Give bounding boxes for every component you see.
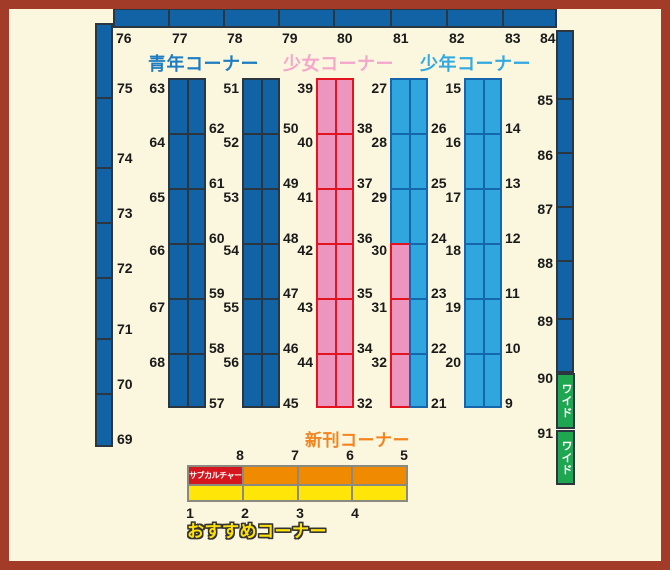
seinen-corner-title: 青年コーナー	[148, 50, 259, 76]
shoujo-shounen-shelf-column	[390, 78, 409, 408]
right-wall-label: 87	[523, 201, 553, 217]
seinen-shelf-1-cell	[168, 298, 187, 353]
seinen-shelf-2-cell	[261, 353, 280, 408]
seinen-shelf-2-cell	[261, 78, 280, 133]
new-releases-shelf-row: サブカルチャー	[189, 467, 406, 484]
shounen-shelf-label-left: 19	[431, 299, 461, 315]
shoujo-shelf-label-left: 39	[283, 80, 313, 96]
shoujo-shounen-shelf-label-left: 27	[357, 80, 387, 96]
left-wall-divider	[97, 97, 111, 99]
shoujo-shelf-cell	[316, 243, 335, 298]
seinen-shelf-1-cell	[168, 133, 187, 188]
left-wall-label: 69	[117, 431, 143, 447]
left-wall-label: 74	[117, 150, 143, 166]
shoujo-shounen-shelf-label-left: 29	[357, 189, 387, 205]
shoujo-shounen-shelf-cell	[390, 298, 409, 353]
shounen-shelf-cell	[464, 78, 483, 133]
shoujo-shelf-label-left: 41	[283, 189, 313, 205]
left-wall-divider	[97, 338, 111, 340]
top-wall-label: 83	[505, 30, 531, 46]
seinen-shelf-2-cell	[261, 243, 280, 298]
shoujo-shelf-cell	[335, 188, 354, 243]
top-wall-label: 78	[227, 30, 253, 46]
subculture-cell: サブカルチャー	[189, 467, 242, 484]
shounen-shelf-label-right: 10	[505, 340, 535, 356]
new-releases-cell-orange	[242, 467, 297, 484]
shounen-shelf-cell	[483, 243, 502, 298]
seinen-shelf-2-cell	[242, 188, 261, 243]
seinen-shelf-1-label-left: 67	[135, 299, 165, 315]
shoujo-shelf-cell	[316, 298, 335, 353]
left-wall-label: 71	[117, 321, 143, 337]
wide-shelf-segment: ワイド	[556, 430, 575, 485]
seinen-shelf-2-cell	[242, 353, 261, 408]
shounen-shelf-cell	[464, 133, 483, 188]
shounen-shelf-cell	[464, 243, 483, 298]
shoujo-shelf-cell	[335, 298, 354, 353]
new-releases-shelf: サブカルチャー	[187, 465, 408, 502]
top-wall-divider	[223, 10, 225, 26]
left-wall-divider	[97, 222, 111, 224]
shoujo-shelf-label-left: 44	[283, 354, 313, 370]
right-wall-divider	[558, 260, 572, 262]
seinen-shelf-1-cell	[187, 188, 206, 243]
seinen-shelf-1-cell	[168, 243, 187, 298]
right-wall-label: 91	[523, 425, 553, 441]
top-wall-divider	[390, 10, 392, 26]
shoujo-shelf-label-left: 43	[283, 299, 313, 315]
shounen-shelf-label-left: 20	[431, 354, 461, 370]
shoujo-shounen-shelf-cell	[390, 133, 409, 188]
shoujo-shelf-cell	[316, 133, 335, 188]
shounen-shelf-label-left: 18	[431, 242, 461, 258]
seinen-shelf-2-cell	[242, 298, 261, 353]
seinen-shelf-1-label-left: 68	[135, 354, 165, 370]
shounen-corner-title: 少年コーナー	[420, 50, 531, 76]
wide-label: ワイド	[560, 440, 571, 476]
seinen-shelf-2-cell	[242, 133, 261, 188]
new-releases-cell-yellow	[297, 486, 352, 500]
seinen-shelf-2-cell	[261, 298, 280, 353]
shounen-shelf-cell	[464, 188, 483, 243]
shoujo-shounen-shelf-cell	[390, 353, 409, 408]
shoujo-shounen-shelf-cell	[409, 298, 428, 353]
seinen-shelf-2-cell	[242, 243, 261, 298]
shounen-shelf-label-right: 13	[505, 175, 535, 191]
shounen-shelf-label-right: 11	[505, 285, 535, 301]
shoujo-shounen-shelf-label-left: 31	[357, 299, 387, 315]
shoujo-shelf-cell	[335, 78, 354, 133]
shounen-shelf-label-left: 15	[431, 80, 461, 96]
seinen-shelf-2-column	[261, 78, 280, 408]
subculture-label: サブカルチャー	[189, 470, 241, 481]
seinen-shelf-1-cell	[187, 353, 206, 408]
new-releases-bottom-label: 4	[340, 505, 370, 521]
seinen-shelf-1-cell	[187, 78, 206, 133]
shounen-shelf-cell	[464, 298, 483, 353]
shoujo-shounen-shelf-cell	[390, 188, 409, 243]
top-wall-label: 79	[282, 30, 308, 46]
shoujo-shounen-shelf-label-left: 32	[357, 354, 387, 370]
top-wall-label: 82	[449, 30, 475, 46]
shounen-shelf-label-right: 14	[505, 120, 535, 136]
seinen-shelf-2-cell	[261, 133, 280, 188]
shoujo-shelf-column	[316, 78, 335, 408]
seinen-shelf-1-cell	[168, 353, 187, 408]
seinen-shelf-2-label-left: 56	[209, 354, 239, 370]
top-wall-divider	[278, 10, 280, 26]
left-wall-divider	[97, 277, 111, 279]
shoujo-shounen-shelf-label-left: 28	[357, 134, 387, 150]
shoujo-shelf-column	[335, 78, 354, 408]
right-wall-label: 85	[523, 92, 553, 108]
recommended-corner-title: おすすめコーナー	[187, 517, 327, 542]
seinen-shelf-2-column	[242, 78, 261, 408]
right-wall-shelf	[556, 30, 574, 373]
top-wall-divider	[502, 10, 504, 26]
seinen-shelf-2-label-left: 52	[209, 134, 239, 150]
right-wall-divider	[558, 152, 572, 154]
shounen-shelf-cell	[464, 353, 483, 408]
shoujo-shounen-shelf-cell	[409, 243, 428, 298]
seinen-shelf-2-label-left: 53	[209, 189, 239, 205]
shoujo-shelf-cell	[335, 243, 354, 298]
top-wall-label: 76	[116, 30, 142, 46]
right-wall-divider	[558, 206, 572, 208]
seinen-shelf-1-label-left: 63	[135, 80, 165, 96]
shoujo-shounen-shelf-column	[409, 78, 428, 408]
top-wall-shelf	[113, 8, 557, 28]
shounen-shelf-cell	[483, 188, 502, 243]
right-wall-divider	[558, 98, 572, 100]
seinen-shelf-1-column	[168, 78, 187, 408]
shounen-shelf-cell	[483, 298, 502, 353]
left-wall-divider	[97, 393, 111, 395]
seinen-shelf-1-label-right: 57	[209, 395, 239, 411]
wide-label: ワイド	[560, 383, 571, 419]
top-wall-divider	[168, 10, 170, 26]
shoujo-shounen-shelf-label-right: 21	[431, 395, 461, 411]
top-wall-label: 81	[393, 30, 419, 46]
shoujo-shelf-cell	[316, 353, 335, 408]
shounen-shelf-cell	[483, 78, 502, 133]
wide-shelf-segment: ワイド	[556, 373, 575, 429]
left-wall-label: 72	[117, 260, 143, 276]
right-wall-label: 86	[523, 147, 553, 163]
seinen-shelf-1-cell	[187, 243, 206, 298]
shounen-shelf-column	[464, 78, 483, 408]
seinen-shelf-1-column	[187, 78, 206, 408]
right-wall-label: 88	[523, 255, 553, 271]
new-releases-shelf-row	[189, 484, 406, 500]
shoujo-shounen-shelf-cell	[409, 353, 428, 408]
shoujo-shelf-cell	[316, 188, 335, 243]
seinen-shelf-2-label-left: 54	[209, 242, 239, 258]
shoujo-shelf-label-right: 32	[357, 395, 387, 411]
store-floor-map: 青年コーナー 少女コーナー 少年コーナー 新刊コーナー おすすめコーナー 767…	[0, 0, 670, 570]
new-releases-top-label: 8	[225, 447, 255, 463]
shoujo-shounen-shelf-cell	[409, 188, 428, 243]
seinen-shelf-1-cell	[168, 78, 187, 133]
left-wall-label: 70	[117, 376, 143, 392]
left-wall-label: 73	[117, 205, 143, 221]
new-releases-cell-yellow	[242, 486, 297, 500]
seinen-shelf-2-cell	[242, 78, 261, 133]
seinen-shelf-2-label-right: 45	[283, 395, 313, 411]
right-wall-label: 90	[523, 370, 553, 386]
top-wall-label: 77	[172, 30, 198, 46]
top-wall-divider	[446, 10, 448, 26]
shounen-shelf-label-right: 9	[505, 395, 535, 411]
shoujo-shelf-cell	[335, 353, 354, 408]
left-wall-divider	[97, 167, 111, 169]
seinen-shelf-1-cell	[187, 298, 206, 353]
new-releases-cell-orange	[297, 467, 352, 484]
shoujo-shounen-shelf-cell	[390, 243, 409, 298]
top-wall-divider	[333, 10, 335, 26]
shounen-shelf-label-left: 16	[431, 134, 461, 150]
top-wall-label: 80	[337, 30, 363, 46]
shoujo-shelf-cell	[316, 78, 335, 133]
right-wall-divider	[558, 318, 572, 320]
shoujo-corner-title: 少女コーナー	[283, 50, 394, 76]
shoujo-shelf-label-left: 42	[283, 242, 313, 258]
shoujo-shounen-shelf-cell	[409, 133, 428, 188]
shoujo-shelf-label-left: 40	[283, 134, 313, 150]
seinen-shelf-1-label-left: 64	[135, 134, 165, 150]
new-releases-cell-yellow	[351, 486, 406, 500]
seinen-shelf-2-label-left: 55	[209, 299, 239, 315]
top-wall-label: 84	[540, 30, 566, 46]
shoujo-shounen-shelf-cell	[390, 78, 409, 133]
shoujo-shounen-shelf-label-left: 30	[357, 242, 387, 258]
right-wall-label: 89	[523, 313, 553, 329]
new-releases-cell-yellow	[189, 486, 242, 500]
seinen-shelf-1-cell	[187, 133, 206, 188]
shounen-shelf-column	[483, 78, 502, 408]
new-releases-cell-orange	[351, 467, 406, 484]
seinen-shelf-1-cell	[168, 188, 187, 243]
shoujo-shelf-cell	[335, 133, 354, 188]
shounen-shelf-label-left: 17	[431, 189, 461, 205]
seinen-shelf-2-cell	[261, 188, 280, 243]
shoujo-shounen-shelf-cell	[409, 78, 428, 133]
shounen-shelf-label-right: 12	[505, 230, 535, 246]
left-wall-shelf	[95, 23, 113, 447]
shounen-shelf-cell	[483, 353, 502, 408]
seinen-shelf-1-label-left: 65	[135, 189, 165, 205]
shounen-shelf-cell	[483, 133, 502, 188]
seinen-shelf-2-label-left: 51	[209, 80, 239, 96]
new-releases-corner-title: 新刊コーナー	[305, 426, 410, 451]
seinen-shelf-1-label-left: 66	[135, 242, 165, 258]
